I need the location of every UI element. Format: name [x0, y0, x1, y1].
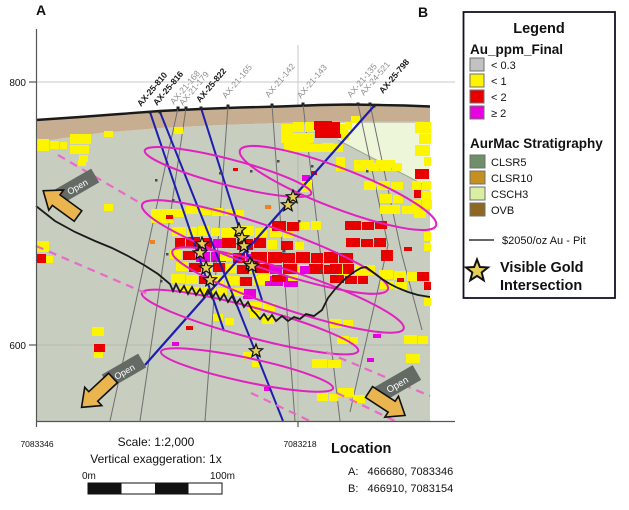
- svg-text:600: 600: [9, 341, 26, 352]
- svg-text:7083218: 7083218: [283, 439, 316, 449]
- svg-text:OVB: OVB: [491, 205, 514, 217]
- svg-text:Vertical exaggeration: 1x: Vertical exaggeration: 1x: [90, 452, 221, 466]
- svg-text:7083346: 7083346: [20, 439, 53, 449]
- svg-text:Au_ppm_Final: Au_ppm_Final: [470, 42, 563, 57]
- svg-text:CSCH3: CSCH3: [491, 189, 528, 201]
- svg-text:< 2: < 2: [491, 92, 507, 104]
- svg-text:B: B: [418, 4, 428, 20]
- svg-text:0m: 0m: [82, 471, 96, 482]
- svg-text:$2050/oz Au - Pit: $2050/oz Au - Pit: [502, 235, 586, 247]
- svg-text:800: 800: [9, 78, 26, 89]
- svg-text:< 1: < 1: [491, 76, 507, 88]
- svg-text:< 0.3: < 0.3: [491, 60, 516, 72]
- svg-text:Scale: 1:2,000: Scale: 1:2,000: [118, 435, 195, 449]
- svg-text:A: A: [36, 2, 46, 18]
- svg-text:CLSR10: CLSR10: [491, 173, 533, 185]
- svg-text:Legend: Legend: [513, 21, 565, 37]
- svg-text:≥ 2: ≥ 2: [491, 108, 506, 120]
- svg-text:100m: 100m: [210, 471, 235, 482]
- svg-text:AurMac Stratigraphy: AurMac Stratigraphy: [470, 136, 603, 151]
- svg-text:Visible Gold: Visible Gold: [500, 260, 584, 276]
- svg-text:CLSR5: CLSR5: [491, 157, 526, 169]
- svg-text:Intersection: Intersection: [500, 278, 582, 294]
- svg-text:A: 466680, 7083346: A: 466680, 7083346: [348, 466, 453, 478]
- svg-text:B: 466910, 7083154: B: 466910, 7083154: [348, 483, 453, 495]
- svg-text:Location: Location: [331, 441, 391, 457]
